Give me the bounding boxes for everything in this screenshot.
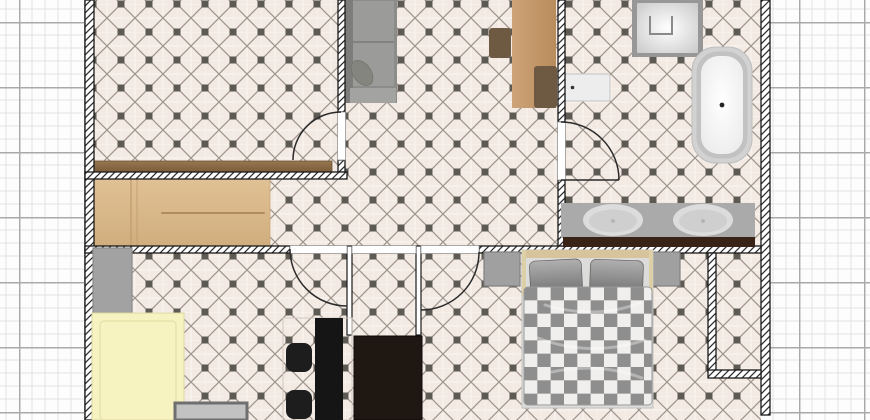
wood-plank-sideboard[interactable] [88, 161, 332, 172]
toilet[interactable] [565, 74, 610, 101]
opening-vestibule[interactable] [352, 246, 416, 254]
door-gap-bedroom[interactable] [421, 246, 479, 254]
vanity[interactable] [561, 203, 755, 247]
wall-bathroom-left-upper[interactable] [558, 0, 565, 122]
wall-topleft-room-bottom[interactable] [85, 172, 347, 179]
nightstand-left[interactable] [484, 252, 520, 286]
bathtub[interactable] [692, 47, 752, 163]
flush-button [571, 86, 575, 90]
sofa[interactable] [345, 0, 397, 103]
wall-closet-nook-horizontal[interactable] [708, 370, 761, 378]
bar-chair-bottom[interactable] [286, 390, 312, 419]
double-bed[interactable] [522, 250, 653, 408]
bathtub-drain [720, 103, 725, 108]
bar-table[interactable] [315, 318, 343, 420]
wall-vestibule-left[interactable] [347, 246, 352, 335]
bed-headboard [522, 250, 653, 258]
wardrobe[interactable] [354, 336, 422, 420]
vanity-front-edge [563, 237, 755, 247]
outer-wall-right[interactable] [761, 0, 770, 415]
yellow-table[interactable] [92, 313, 184, 420]
wall-livingroom-left-stub[interactable] [338, 160, 345, 172]
shower[interactable] [632, 0, 703, 57]
dining-chair-bottom[interactable] [534, 66, 557, 108]
gray-cabinet[interactable] [175, 403, 247, 420]
wall-vestibule-right[interactable] [416, 246, 421, 335]
door-gap-bathroom[interactable] [558, 122, 566, 180]
dining-chair-left[interactable] [489, 28, 511, 58]
floor-plan-canvas [0, 0, 870, 420]
wall-livingroom-left-upper[interactable] [338, 0, 345, 112]
kitchen-counter[interactable] [94, 179, 270, 248]
door-gap-topleft-room[interactable] [338, 112, 346, 160]
bar-chair-top[interactable] [286, 343, 312, 372]
fridge[interactable] [93, 248, 132, 313]
wall-closet-nook-vertical[interactable] [708, 253, 716, 372]
door-gap-kitchen-room[interactable] [290, 246, 347, 254]
